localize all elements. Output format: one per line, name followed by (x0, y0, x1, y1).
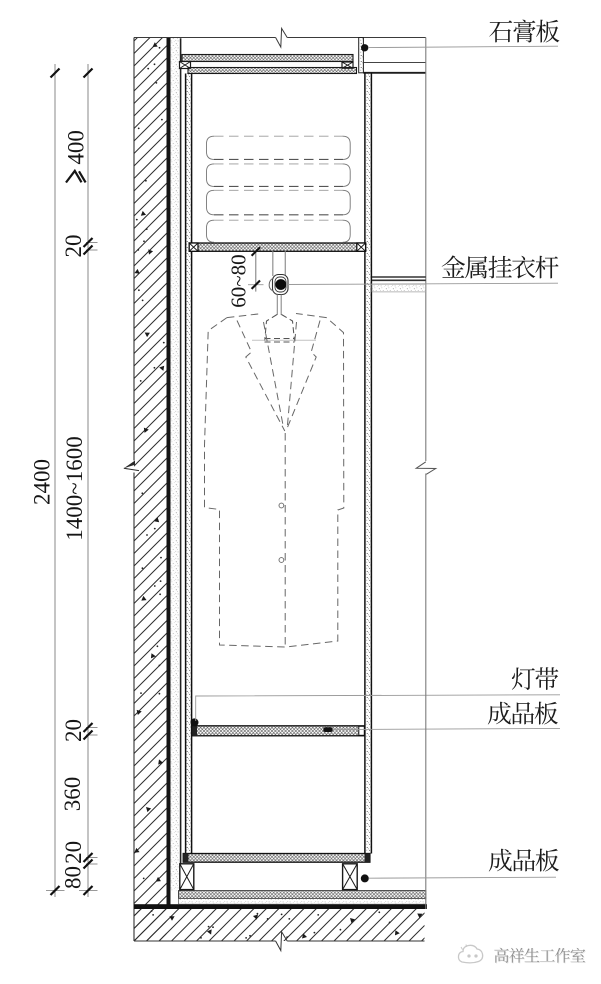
svg-text:80: 80 (61, 866, 86, 889)
svg-text:20: 20 (61, 719, 86, 742)
svg-text:400: 400 (64, 130, 89, 165)
svg-text:360: 360 (60, 777, 85, 812)
svg-text:20: 20 (61, 235, 86, 258)
svg-text:20: 20 (61, 841, 86, 864)
svg-text:60~80: 60~80 (226, 254, 250, 307)
svg-text:1400~1600: 1400~1600 (62, 436, 87, 540)
svg-text:2400: 2400 (30, 459, 55, 505)
